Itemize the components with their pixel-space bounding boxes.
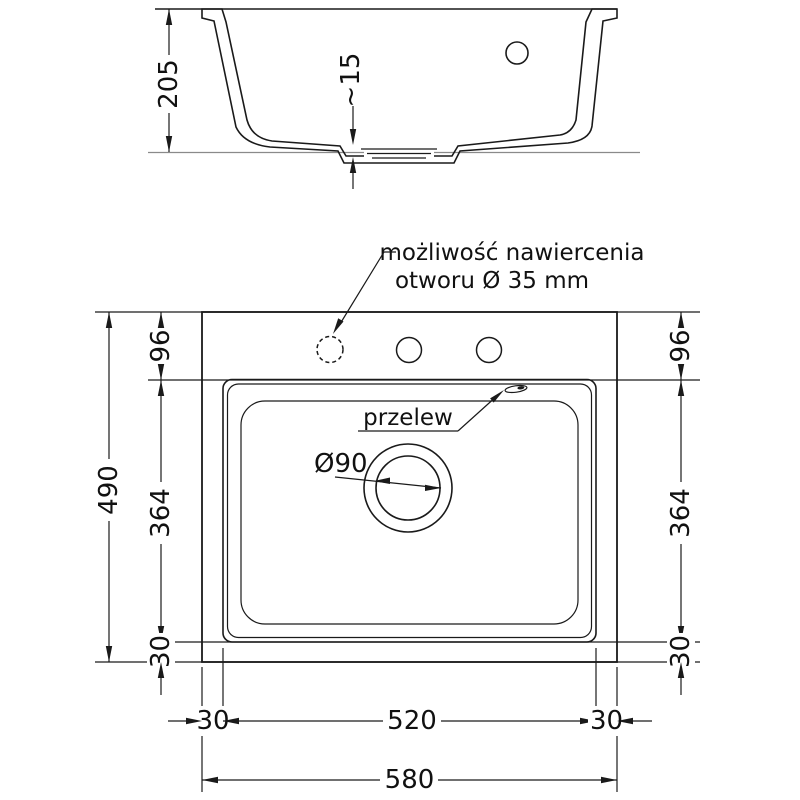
drill-note: możliwość nawiercenia otworu Ø 35 mm <box>333 240 644 334</box>
dim-label-580: 580 <box>385 765 435 795</box>
dim-bottom-right-30: 30 <box>666 633 696 695</box>
drain-diameter-label: Ø90 <box>314 449 368 479</box>
sink-cross-section <box>202 9 617 163</box>
side-view-section: 205 ~15 <box>148 9 640 189</box>
plan-view: przelew Ø90 490 96 <box>94 312 700 795</box>
dim-drain-depth-15: ~15 <box>336 53 366 189</box>
dim-label-364-right: 364 <box>666 488 696 538</box>
dim-bowl-right-364: 364 <box>666 380 696 642</box>
dim-label-96-right: 96 <box>666 329 696 362</box>
dim-rim-left-96: 96 <box>146 312 176 380</box>
dim-label-30-bottom-right: 30 <box>590 706 623 736</box>
drill-note-line1: możliwość nawiercenia <box>380 240 645 266</box>
dim-margin-left-30: 30 <box>168 706 232 736</box>
dim-label-30-left: 30 <box>146 635 176 668</box>
overflow-hole-plan <box>505 384 528 393</box>
dim-label-520: 520 <box>387 706 437 736</box>
dim-label-30-right: 30 <box>666 635 696 668</box>
dim-label-96-left: 96 <box>146 329 176 362</box>
faucet-hole-optional-dashed <box>317 337 343 363</box>
dim-bowl-width-520: 520 <box>223 706 596 736</box>
drill-note-line2: otworu Ø 35 mm <box>395 268 589 294</box>
overflow-label: przelew <box>363 405 453 431</box>
bowl-floor-line <box>241 401 578 624</box>
dim-label-15: ~15 <box>336 53 366 108</box>
overflow-hole-section <box>506 42 528 64</box>
drill-note-arrow <box>333 318 344 334</box>
sink-outline <box>202 312 617 662</box>
faucet-hole-2 <box>477 338 502 363</box>
dim-bowl-left-364: 364 <box>146 380 176 642</box>
dim-margin-right-30: 30 <box>588 706 652 736</box>
dim-label-490: 490 <box>94 465 124 515</box>
dim-total-height-205: 205 <box>154 9 184 152</box>
drawing-page: 205 ~15 możliwość nawiercenia otworu Ø 3… <box>0 0 800 800</box>
faucet-hole-1 <box>397 338 422 363</box>
dim-bottom-left-30: 30 <box>146 633 176 695</box>
technical-drawing: 205 ~15 możliwość nawiercenia otworu Ø 3… <box>0 0 800 800</box>
dim-label-205: 205 <box>154 59 184 109</box>
dim-overall-width-580: 580 <box>202 765 617 795</box>
dim-label-364-left: 364 <box>146 488 176 538</box>
dim-overall-depth-490: 490 <box>94 312 124 662</box>
dim-rim-right-96: 96 <box>666 312 696 380</box>
overflow-annotation: przelew <box>358 390 504 431</box>
